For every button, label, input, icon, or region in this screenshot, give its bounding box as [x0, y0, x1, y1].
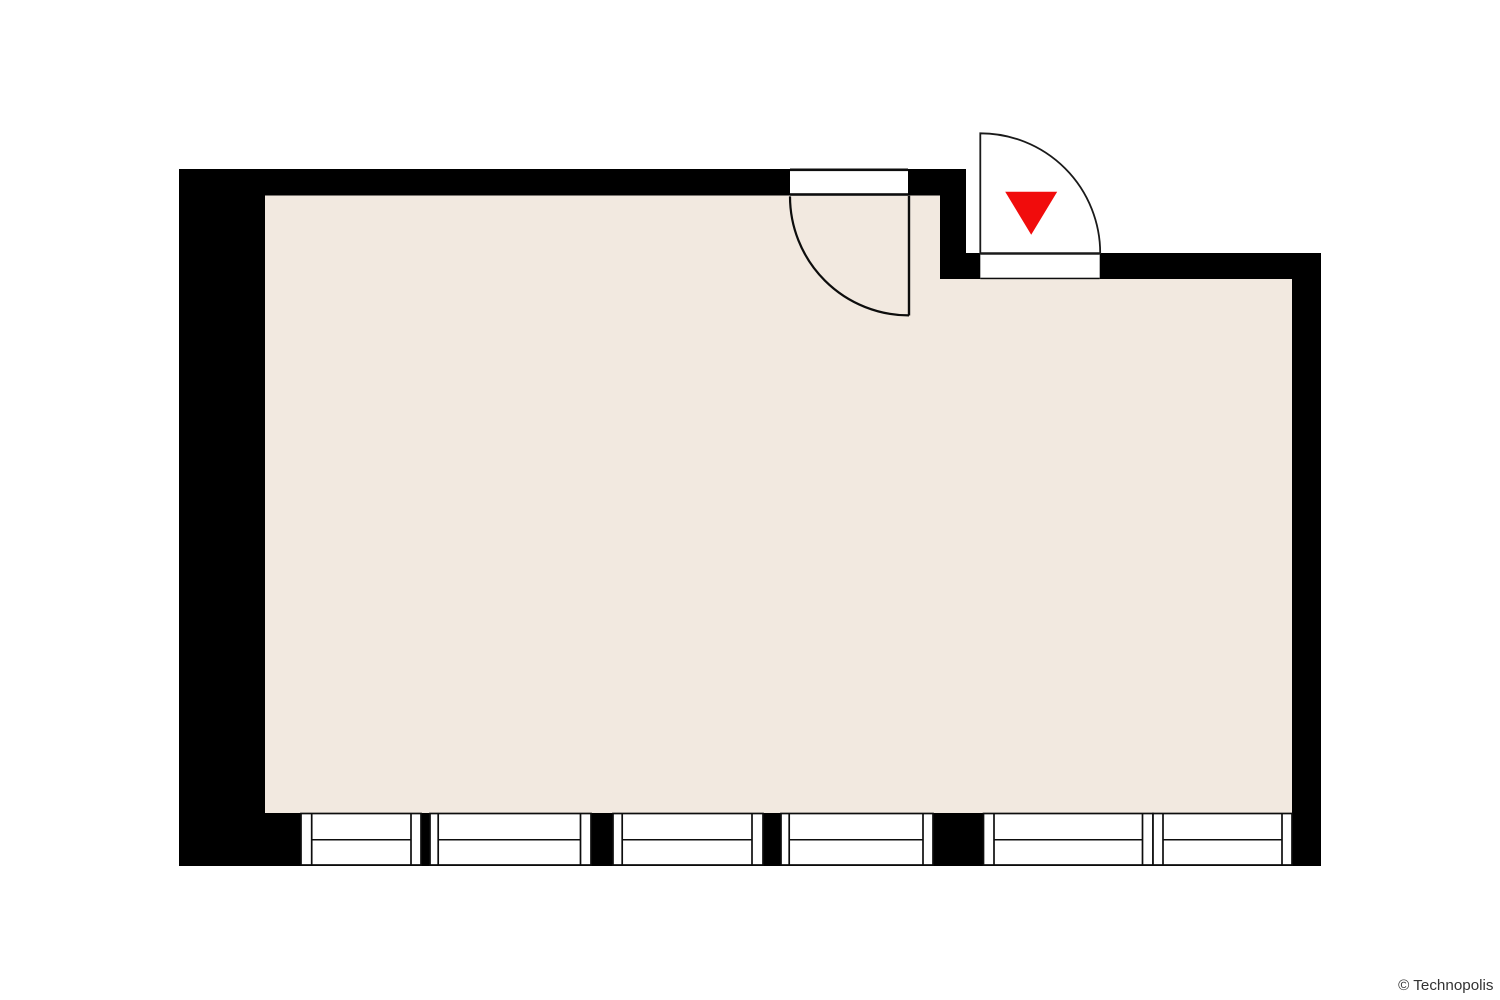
svg-text:© Technopolis: © Technopolis [1398, 977, 1494, 994]
